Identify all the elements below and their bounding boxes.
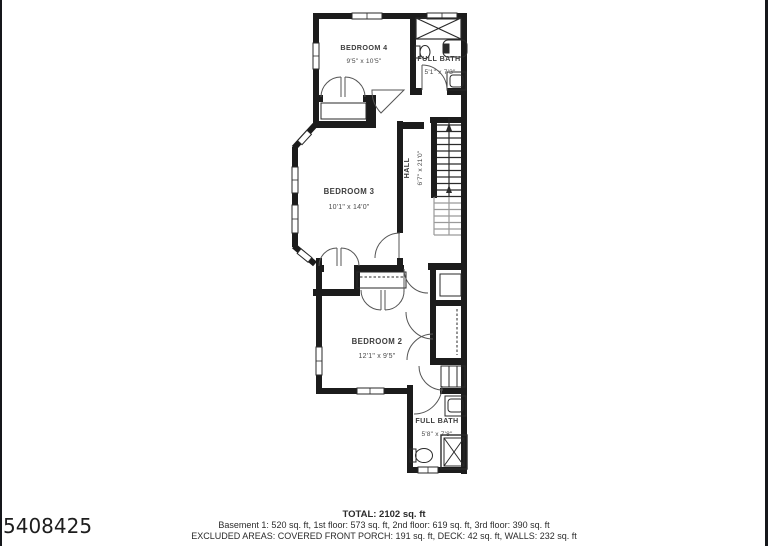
excluded-areas-text: EXCLUDED AREAS: COVERED FRONT PORCH: 191… xyxy=(0,531,768,542)
wire-shelf-closet xyxy=(357,272,406,288)
toilet-lower-icon xyxy=(410,449,433,463)
floor-areas-text: Basement 1: 520 sq. ft, 1st floor: 573 s… xyxy=(0,520,768,531)
bedroom2-label: BEDROOM 2 xyxy=(352,337,403,346)
closet-x-box-top xyxy=(416,18,461,39)
linen-closet-shelf xyxy=(440,274,461,296)
staircase xyxy=(434,118,461,235)
full-bath-upper-label: FULL BATH xyxy=(417,54,460,63)
floorplan-drawing: BEDROOM 4 9'5" x 10'5" FULL BATH 5'1" x … xyxy=(0,0,768,546)
full-bath-lower-label: FULL BATH xyxy=(415,416,458,425)
bedroom4-label: BEDROOM 4 xyxy=(340,43,387,52)
area-summary: TOTAL: 2102 sq. ft Basement 1: 520 sq. f… xyxy=(0,509,768,541)
hall-dims: 6'7" x 21'0" xyxy=(417,150,424,185)
stairs-up-arrow-icon xyxy=(446,123,452,131)
door-arcs xyxy=(319,65,447,414)
hall-label: HALL xyxy=(402,157,411,178)
bedroom2-dims: 12'1" x 9'5" xyxy=(359,353,396,360)
bedroom3-dims: 10'1" x 14'0" xyxy=(329,204,370,211)
bedroom3-label: BEDROOM 3 xyxy=(324,187,375,196)
full-bath-lower-dims: 5'8" x 7'8" xyxy=(421,431,452,438)
bedroom4-closet-box xyxy=(321,103,366,119)
full-bath-upper-dims: 5'1" x 7'3" xyxy=(424,69,455,76)
total-area-text: TOTAL: 2102 sq. ft xyxy=(0,509,768,520)
stairs-up-arrow-lower-icon xyxy=(446,185,452,193)
floorplan-page: BEDROOM 4 9'5" x 10'5" FULL BATH 5'1" x … xyxy=(0,0,768,546)
bedroom4-dims: 9'5" x 10'5" xyxy=(347,58,382,65)
listing-id-number: 5408425 xyxy=(3,514,92,538)
